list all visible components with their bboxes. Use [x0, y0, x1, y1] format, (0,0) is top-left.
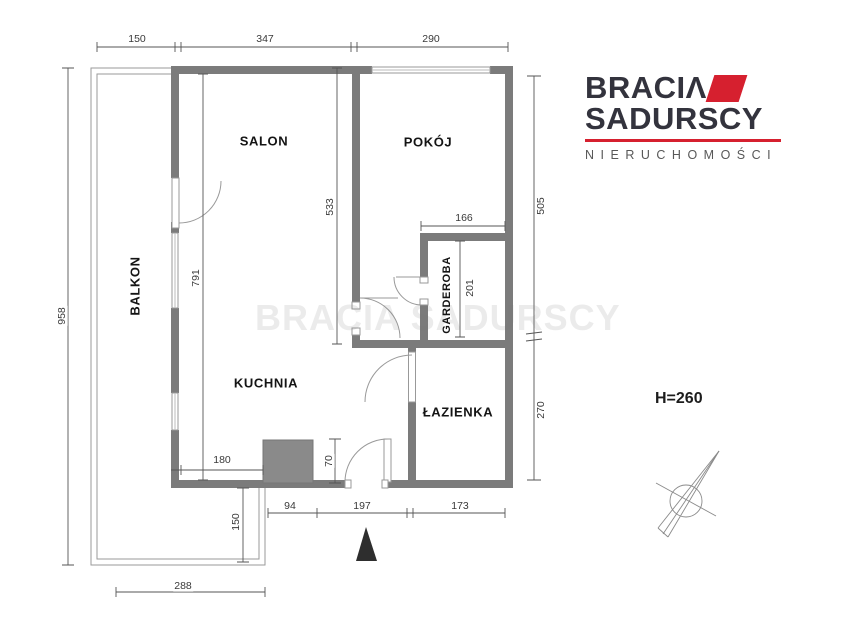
dim-label-791: 791	[191, 268, 202, 288]
room-label-GARDEROBA: GARDEROBA	[441, 256, 453, 334]
dim-label-180: 180	[212, 455, 232, 466]
room-label-POKÓJ: POKÓJ	[404, 135, 453, 150]
dim-label-958: 958	[57, 306, 68, 326]
dim-label-197: 197	[352, 501, 372, 512]
dim-label-290: 290	[421, 34, 441, 45]
room-label-SALON: SALON	[240, 134, 289, 149]
dim-label-288: 288	[173, 581, 193, 592]
dim-label-505: 505	[536, 196, 547, 216]
dim-label-270: 270	[536, 400, 547, 420]
room-label-BALKON: BALKON	[128, 256, 143, 315]
dim-label-150: 150	[231, 512, 242, 532]
labels-layer: SALONPOKÓJBALKONKUCHNIAGARDEROBAŁAZIENKA…	[0, 0, 860, 628]
dim-label-347: 347	[255, 34, 275, 45]
floor-plan-page: BRACIA SADURSCY BRACIΛ SADURSCY NIERUCHO…	[0, 0, 860, 628]
dim-label-533: 533	[325, 197, 336, 217]
dim-label-201: 201	[465, 278, 476, 298]
room-label-KUCHNIA: KUCHNIA	[234, 376, 298, 391]
room-label-ŁAZIENKA: ŁAZIENKA	[423, 405, 494, 420]
dim-label-150: 150	[127, 34, 147, 45]
dim-label-94: 94	[283, 501, 297, 512]
dim-label-70: 70	[324, 454, 335, 468]
dim-label-173: 173	[450, 501, 470, 512]
dim-label-166: 166	[454, 213, 474, 224]
